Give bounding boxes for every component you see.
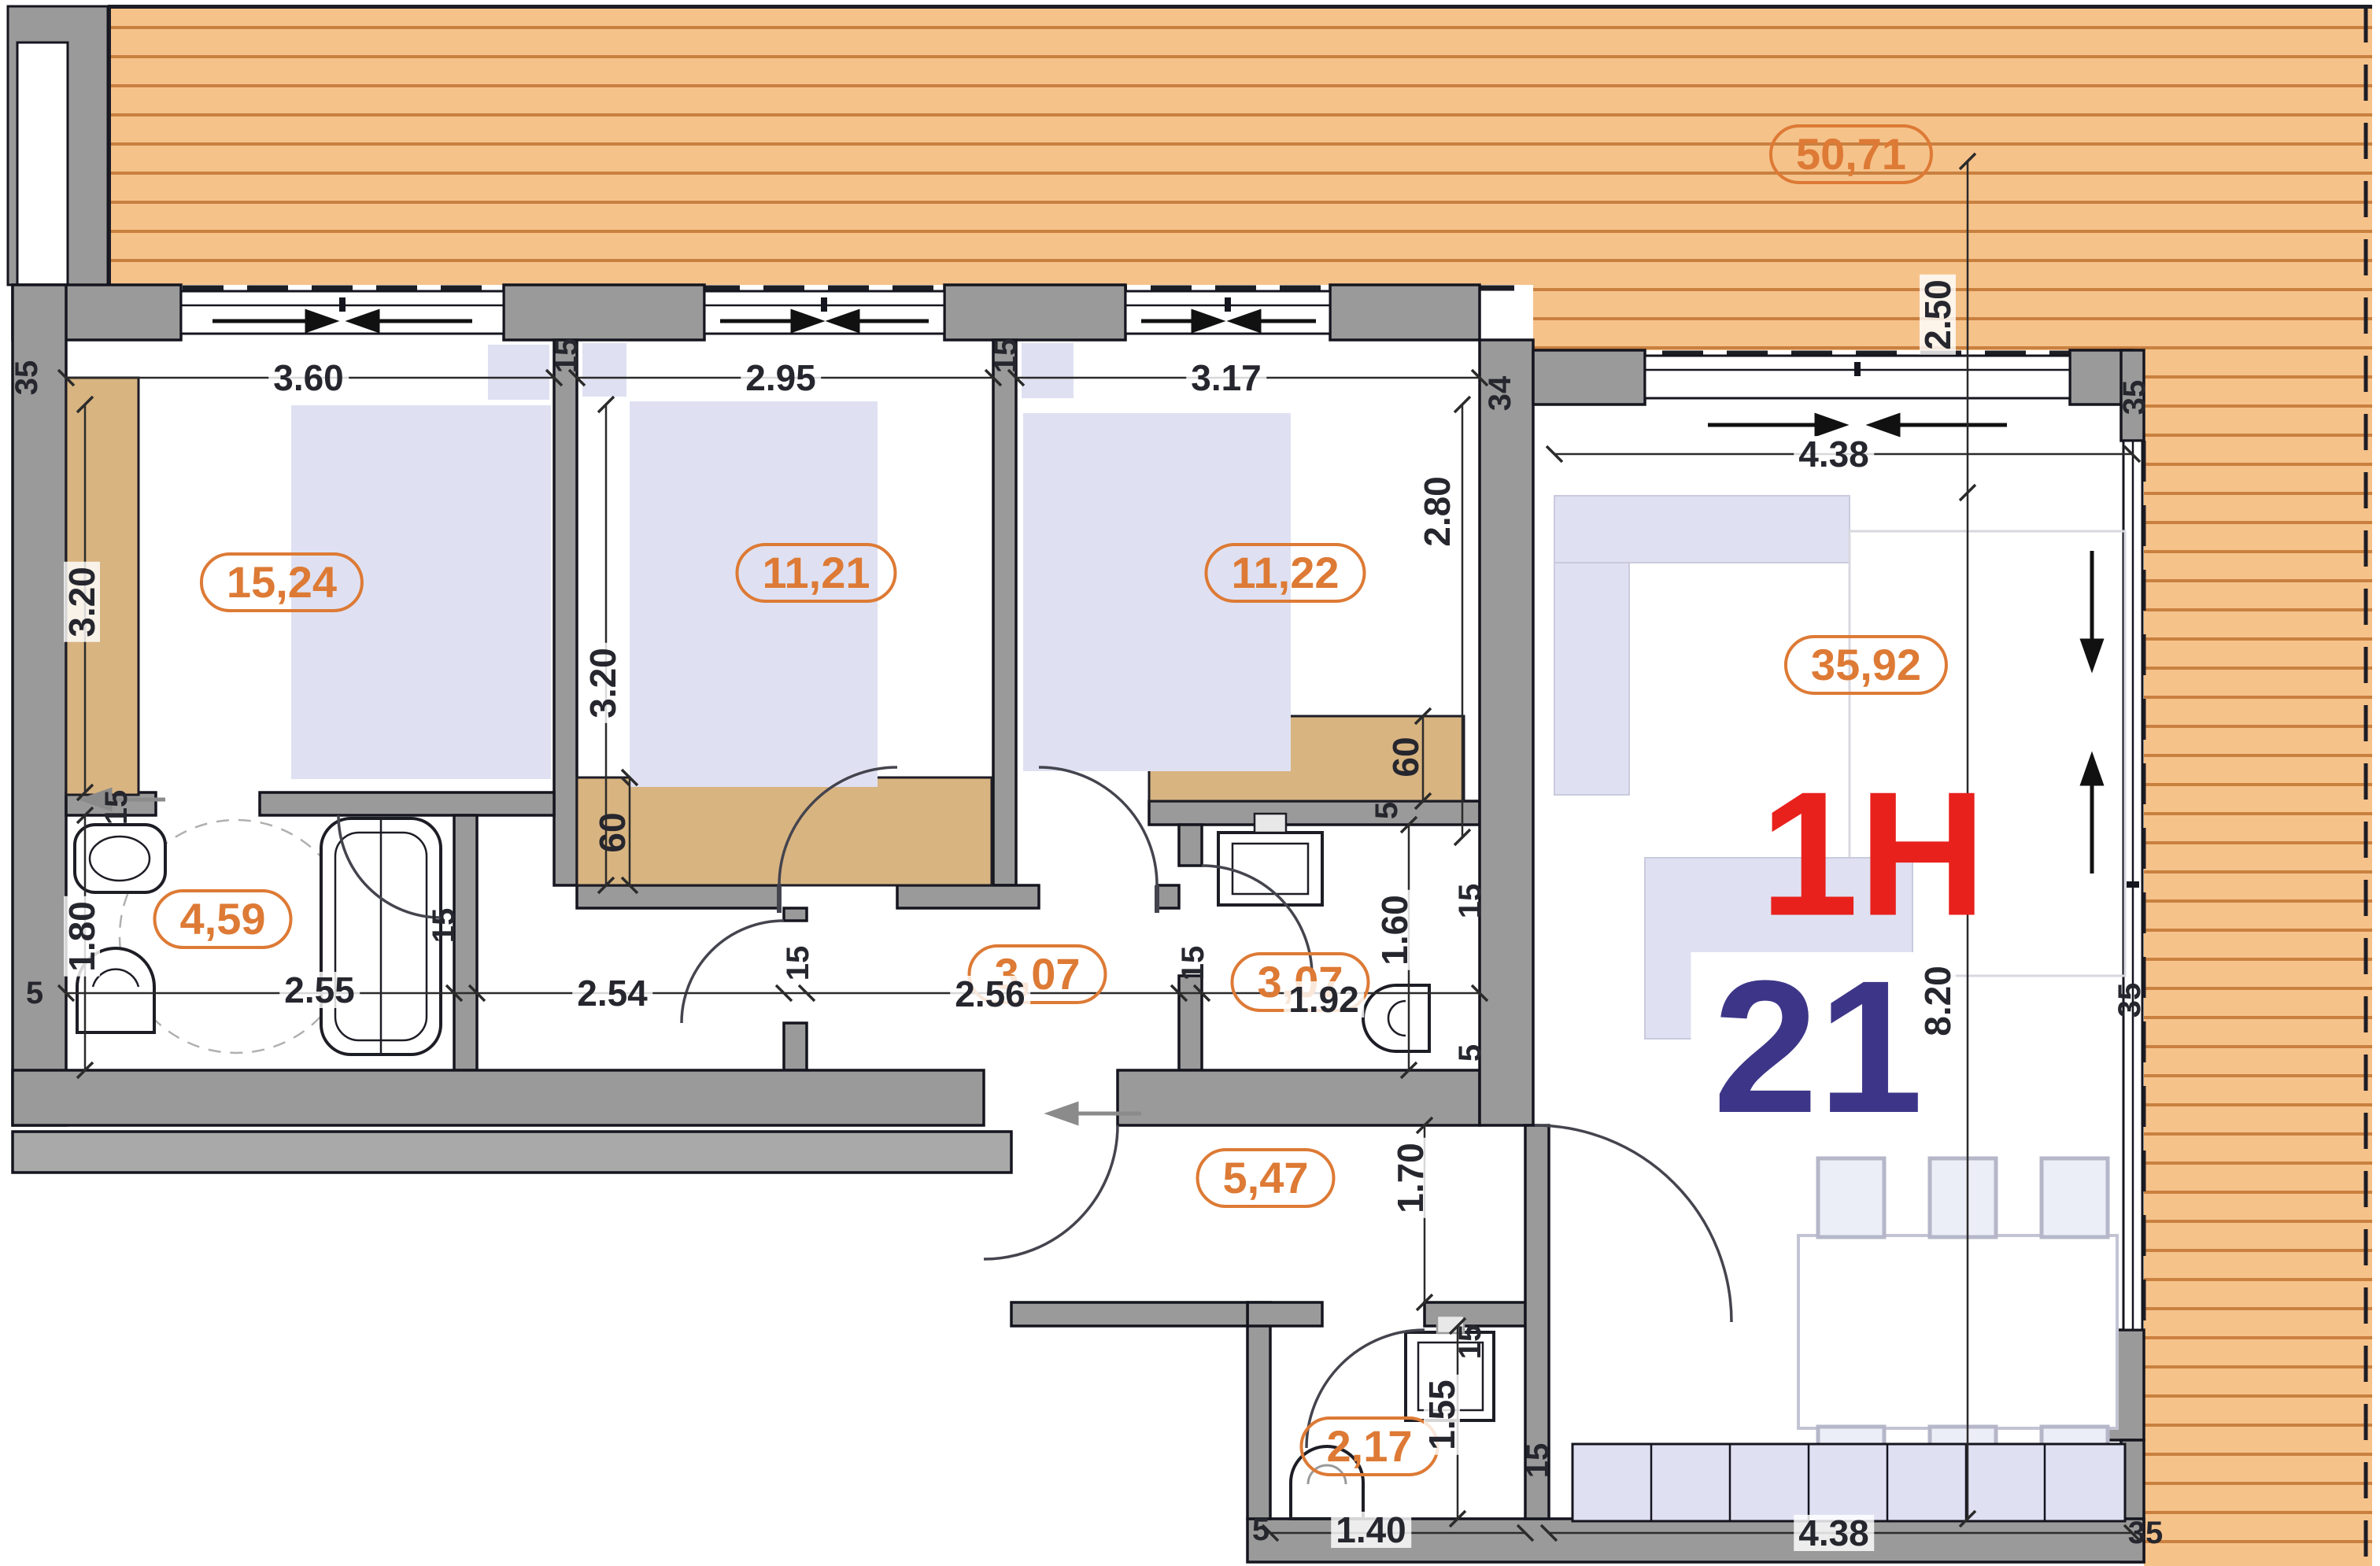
- wc-area-badge: 2,17: [1300, 1416, 1439, 1476]
- bedroom2-area-badge: 11,21: [735, 543, 896, 603]
- dim-bedroom2-height: 3.20: [585, 643, 621, 723]
- wall-label-5-wardrobe3: 5: [1371, 802, 1402, 819]
- bedroom3-area-badge: 11,22: [1204, 543, 1366, 603]
- dim-bath2-width: 1.92: [1284, 981, 1364, 1018]
- wall-label-15-divider2: 15: [990, 338, 1022, 374]
- dim-living-depth-top: 2.80: [1419, 471, 1455, 552]
- window-bedroom3: [1125, 291, 1330, 334]
- dim-bedroom3-width: 3.17: [1186, 360, 1266, 396]
- dim-hall-width: 2.56: [950, 976, 1030, 1012]
- door-hall: [682, 921, 784, 1023]
- floor-plan: 50,71 15,24 11,21 11,22 35,92 4,59 3,07 …: [0, 0, 2380, 1566]
- window-living-top: [1645, 356, 2070, 398]
- dim-bedroom2-width: 2.95: [741, 360, 821, 396]
- unit-type: 1H: [1760, 766, 1986, 943]
- dim-terrace-depth: 2.50: [1920, 275, 1956, 355]
- bath1-area-badge: 4,59: [153, 889, 293, 949]
- dim-bath1-width: 2.55: [279, 972, 360, 1008]
- dim-wc-width: 1.40: [1331, 1512, 1411, 1548]
- dim-corridor-width: 2.54: [572, 975, 652, 1011]
- dim-wc-height: 1.55: [1424, 1375, 1460, 1455]
- nightstand-bedroom1: [488, 345, 549, 400]
- dining-table: [1798, 1235, 2117, 1428]
- wall-label-15-bath2right: 15: [1454, 884, 1486, 919]
- sink-bath1: [75, 825, 165, 892]
- wall-label-5-bath1: 5: [26, 977, 43, 1009]
- floor-plan-drawing: [0, 0, 2380, 1566]
- dim-bedroom1-width: 3.60: [268, 360, 349, 396]
- dim-living-width-bottom: 4.38: [1794, 1515, 1874, 1551]
- bedroom1-area-badge: 15,24: [200, 552, 364, 612]
- wall-label-15-entry: 15: [1454, 1324, 1486, 1360]
- wall-label-15-wcright: 15: [1522, 1443, 1554, 1479]
- nightstand-bedroom2: [582, 343, 626, 397]
- dim-bath2-height: 1.60: [1377, 890, 1413, 970]
- dim-wardrobe-depth: 60: [1388, 732, 1424, 781]
- nightstand-bedroom3: [1022, 343, 1074, 398]
- neighbour-bay: [8, 6, 108, 285]
- sofa-arm: [1554, 563, 1629, 795]
- dim-bedroom1-height: 3.20: [64, 562, 100, 642]
- wall-label-35-livingright: 35: [2119, 380, 2150, 416]
- wall-label-34-livingleft: 34: [1484, 376, 1516, 412]
- wall-label-5-bath2: 5: [1454, 1044, 1486, 1062]
- living-area-badge: 35,92: [1784, 635, 1948, 695]
- wall-label-35-bottomright: 35: [2128, 1517, 2164, 1549]
- wall-label-15-hall: 15: [782, 946, 814, 981]
- dim-living-width-top: 4.38: [1794, 436, 1874, 472]
- entry-area-badge: 5,47: [1196, 1148, 1336, 1208]
- dim-living-height: 8.20: [1920, 961, 1956, 1041]
- dim-entry-height: 1.70: [1392, 1138, 1428, 1218]
- window-bedroom2: [704, 291, 944, 334]
- sideboard: [1572, 1444, 2125, 1521]
- wall-label-35-topleft: 35: [11, 360, 42, 396]
- desk-bedroom2: [577, 777, 992, 885]
- window-living-right: [2123, 441, 2142, 1330]
- terrace-area-badge: 50,71: [1769, 124, 1933, 184]
- wall-label-15-divider1: 15: [551, 338, 582, 374]
- sofa-back: [1554, 496, 1850, 563]
- door-living: [1535, 1125, 1731, 1322]
- wall-label-35-rightmid: 35: [2114, 983, 2145, 1018]
- window-bedroom1: [181, 291, 504, 334]
- wall-label-5-wc: 5: [1252, 1514, 1269, 1546]
- door-bedroom3: [1039, 767, 1157, 885]
- unit-number: 21: [1691, 952, 1946, 1141]
- toilet-bath2: [1363, 985, 1429, 1051]
- dim-desk-depth: 60: [594, 807, 630, 857]
- dim-bath1-height: 1.80: [64, 896, 100, 977]
- wall-label-15-bath1top: 15: [101, 790, 132, 825]
- wall-label-15-bath1right: 15: [428, 908, 460, 944]
- wall-label-15-bath2left: 15: [1177, 946, 1209, 981]
